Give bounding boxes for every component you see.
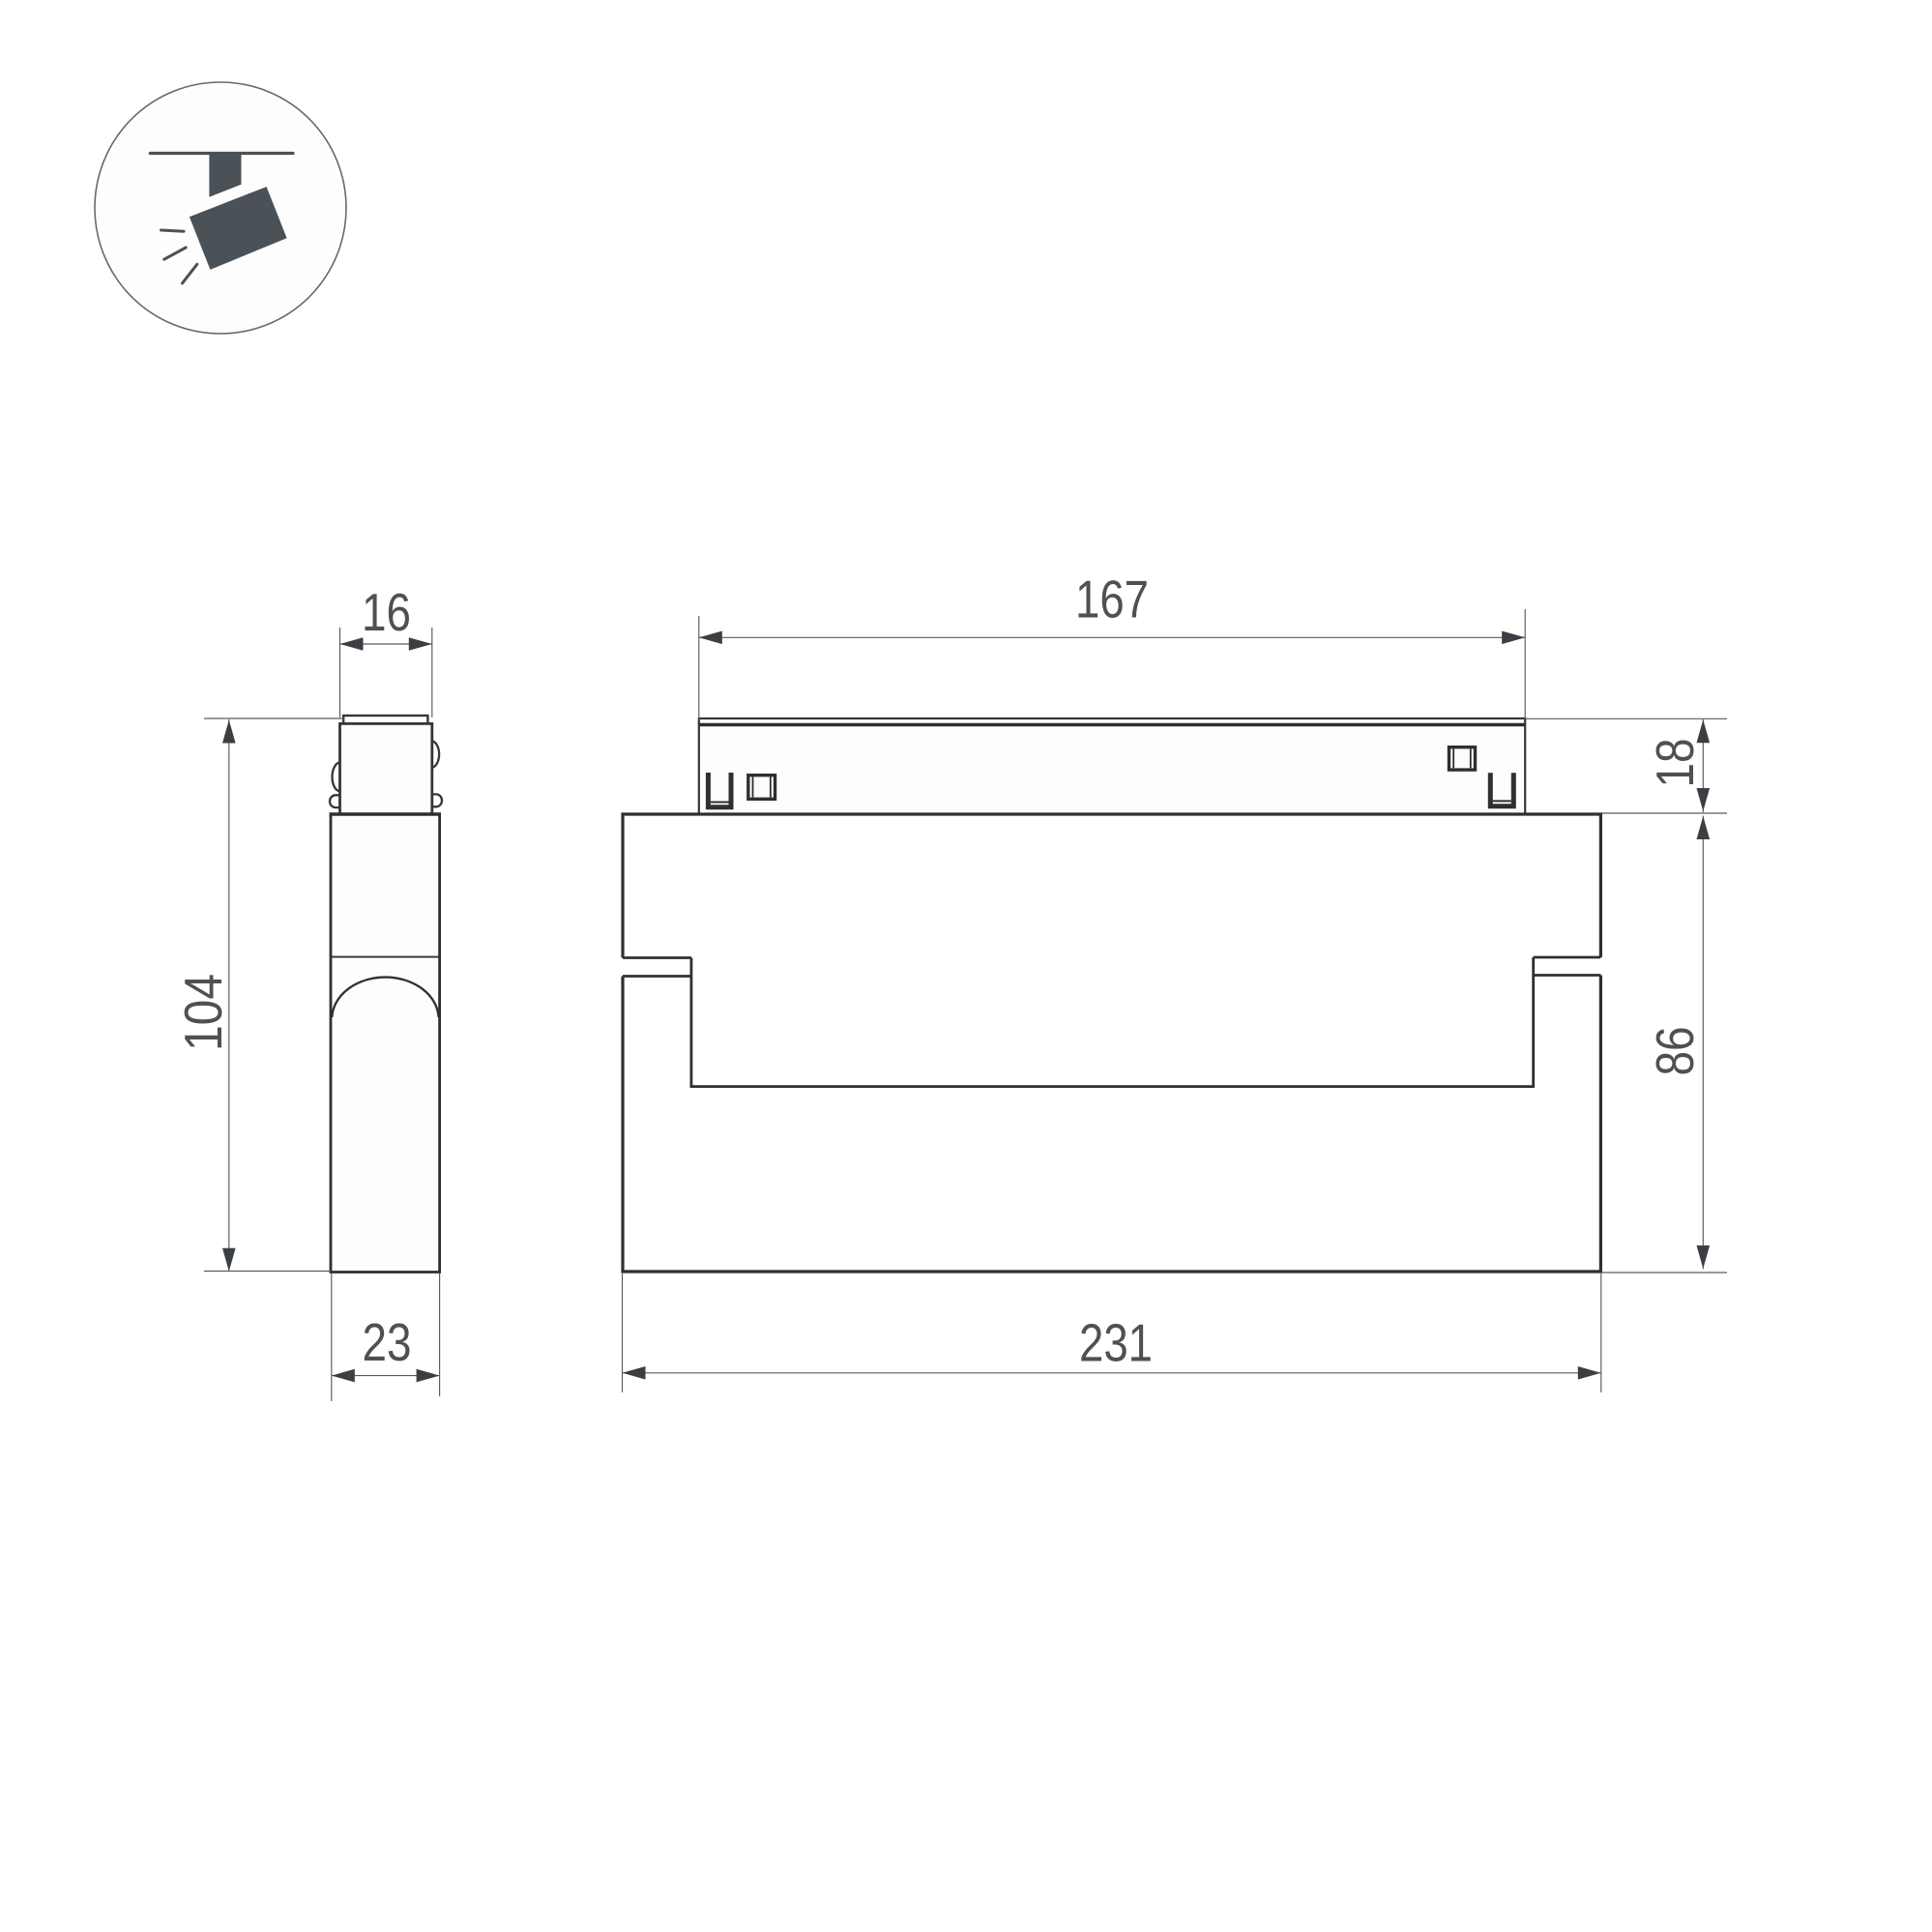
svg-text:231: 231	[1079, 1313, 1153, 1373]
svg-text:104: 104	[173, 974, 233, 1051]
svg-text:18: 18	[1645, 739, 1705, 788]
svg-text:16: 16	[362, 582, 411, 642]
svg-text:23: 23	[363, 1312, 412, 1372]
svg-text:86: 86	[1645, 1027, 1705, 1076]
svg-text:167: 167	[1075, 570, 1149, 629]
